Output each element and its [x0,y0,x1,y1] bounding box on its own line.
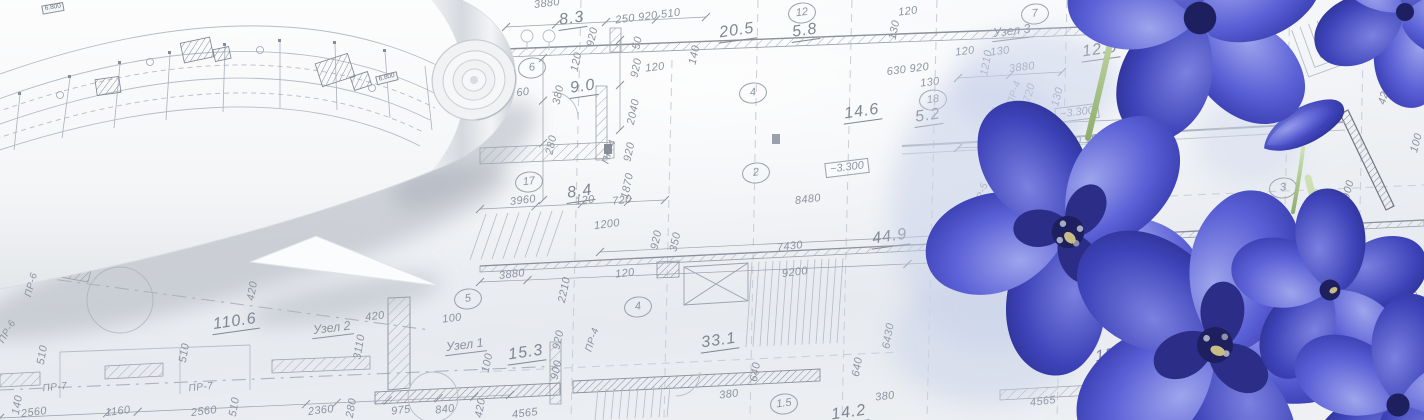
delphinium-flowers [0,0,1424,420]
blueprint-flower-banner: 3880250 920 5101201308.320.55.8129205012… [0,0,1424,420]
